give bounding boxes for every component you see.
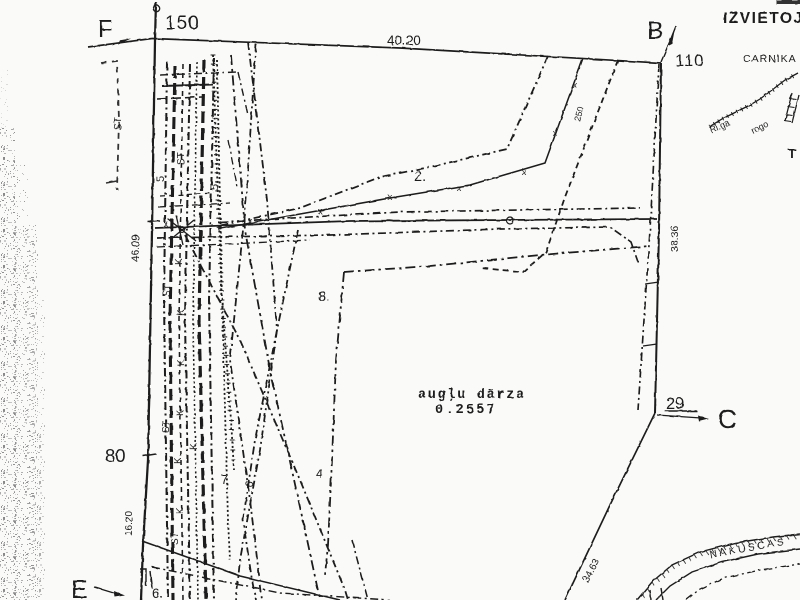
svg-text:ST: ST <box>161 420 172 433</box>
svg-text:ST: ST <box>113 117 124 130</box>
svg-text:5: 5 <box>155 176 167 182</box>
svg-text:K: K <box>175 409 186 416</box>
svg-text:46.09: 46.09 <box>130 234 142 262</box>
svg-text:x: x <box>388 192 393 202</box>
svg-text:K: K <box>174 258 185 265</box>
svg-text:8.: 8. <box>318 289 330 305</box>
svg-text:x: x <box>553 128 558 138</box>
svg-text:x: x <box>164 219 169 229</box>
svg-text:T: T <box>788 146 796 161</box>
svg-text:K: K <box>176 359 187 366</box>
svg-text:4: 4 <box>316 467 323 481</box>
svg-text:5: 5 <box>209 184 221 190</box>
svg-text:K: K <box>176 309 187 316</box>
svg-text:6.: 6. <box>152 586 163 600</box>
svg-text:CARNIKA: CARNIKA <box>743 53 797 65</box>
svg-text:x: x <box>573 80 578 90</box>
svg-text:x: x <box>248 216 253 226</box>
svg-text:E: E <box>71 576 88 600</box>
svg-text:16.20: 16.20 <box>124 511 135 536</box>
svg-text:F: F <box>98 16 113 43</box>
svg-text:150: 150 <box>165 13 200 34</box>
svg-text:7: 7 <box>221 473 228 487</box>
svg-text:110: 110 <box>675 52 704 70</box>
svg-text:K: K <box>189 443 200 450</box>
svg-text:augļu dārza: augļu dārza <box>418 388 526 403</box>
svg-text:40.20: 40.20 <box>387 33 421 48</box>
svg-text:C: C <box>718 404 737 434</box>
svg-text:ST: ST <box>176 152 187 165</box>
svg-text:K: K <box>173 457 184 464</box>
svg-text:IZVIETOJ: IZVIETOJ <box>723 10 800 27</box>
svg-text:K: K <box>175 507 186 514</box>
svg-text:2.: 2. <box>414 169 426 185</box>
svg-text:80: 80 <box>105 445 126 466</box>
svg-text:x: x <box>318 206 323 216</box>
svg-text:ST: ST <box>162 284 173 297</box>
svg-text:x: x <box>522 167 527 177</box>
svg-text:B: B <box>647 17 664 45</box>
svg-text:38.36: 38.36 <box>669 226 681 252</box>
svg-text:ST: ST <box>170 532 181 545</box>
svg-text:x: x <box>457 183 462 193</box>
svg-text:0.2557: 0.2557 <box>435 403 497 418</box>
